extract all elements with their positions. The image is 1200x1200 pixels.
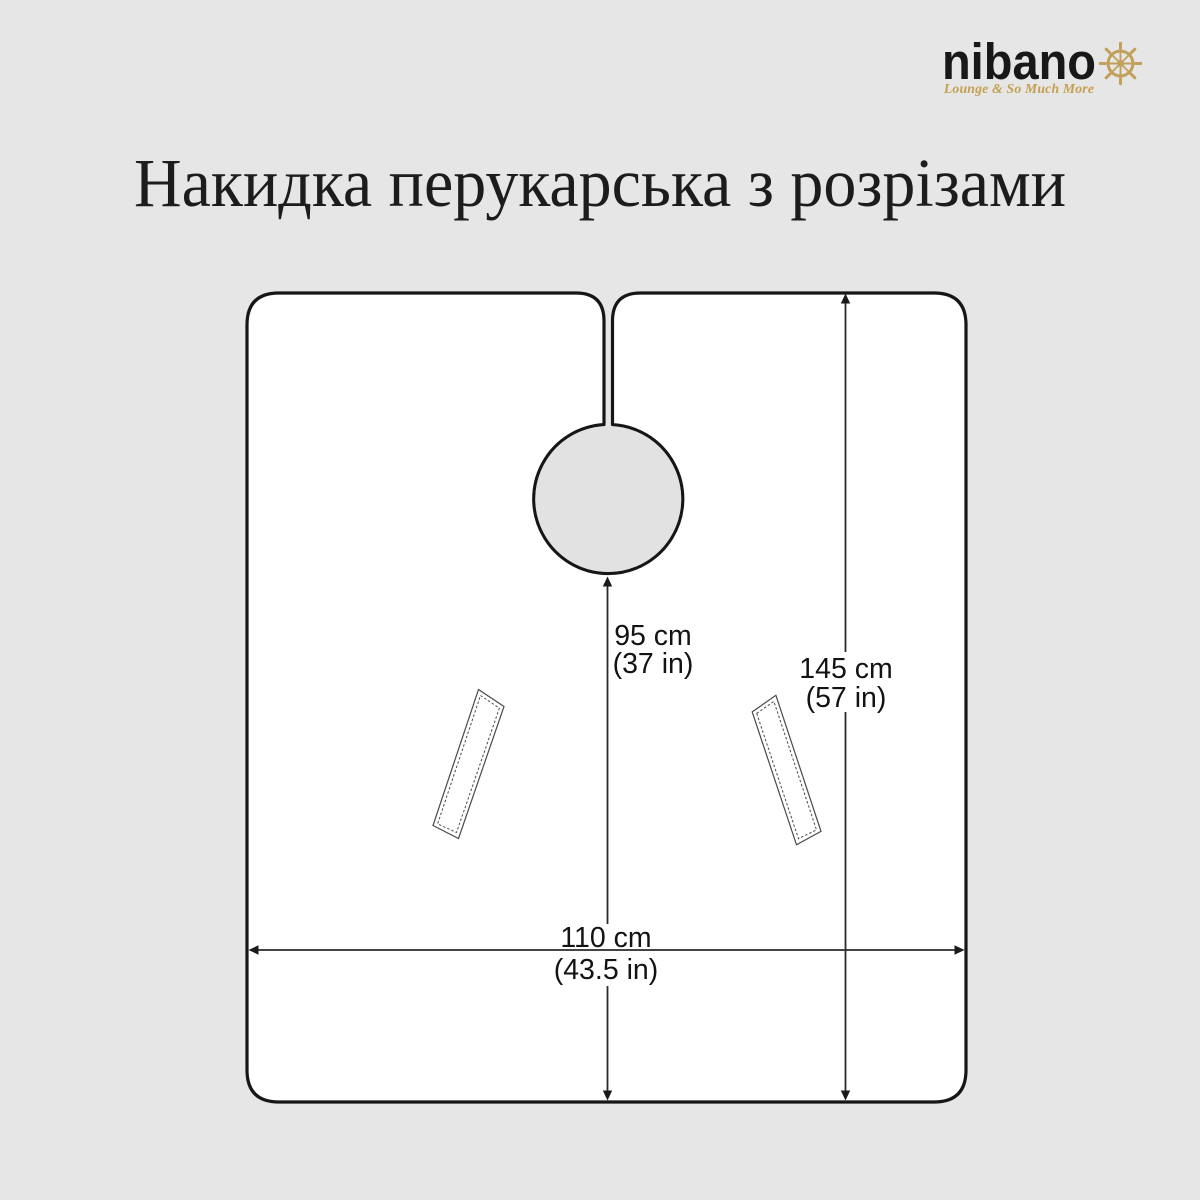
- svg-text:(37 in): (37 in): [613, 648, 694, 680]
- svg-text:110 cm: 110 cm: [560, 922, 651, 954]
- svg-text:145 cm: 145 cm: [799, 653, 892, 685]
- svg-text:(43.5 in): (43.5 in): [554, 954, 659, 986]
- svg-text:(57 in): (57 in): [806, 682, 887, 714]
